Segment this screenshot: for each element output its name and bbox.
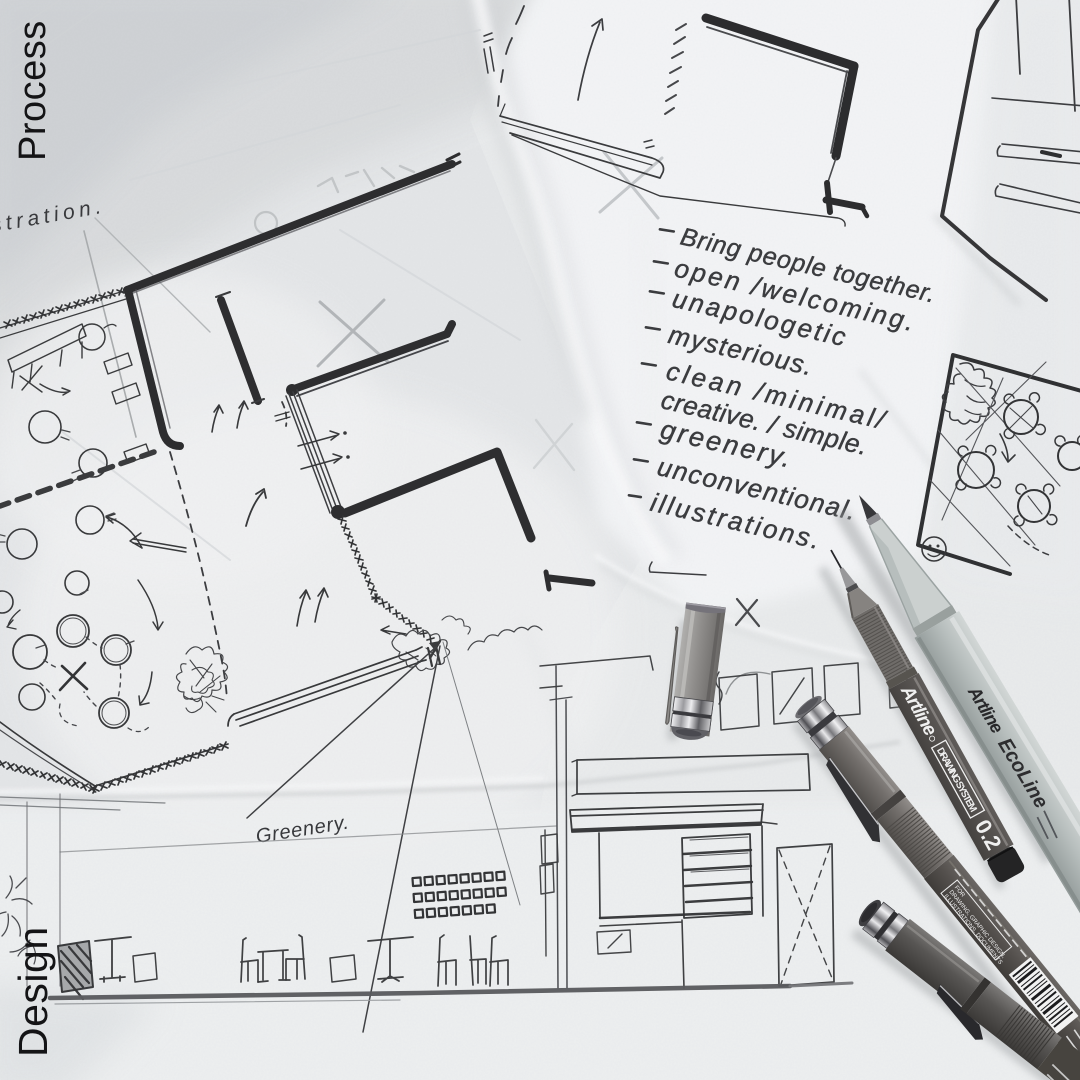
svg-text:Process: Process xyxy=(12,20,54,161)
svg-text:Design: Design xyxy=(10,926,56,1057)
